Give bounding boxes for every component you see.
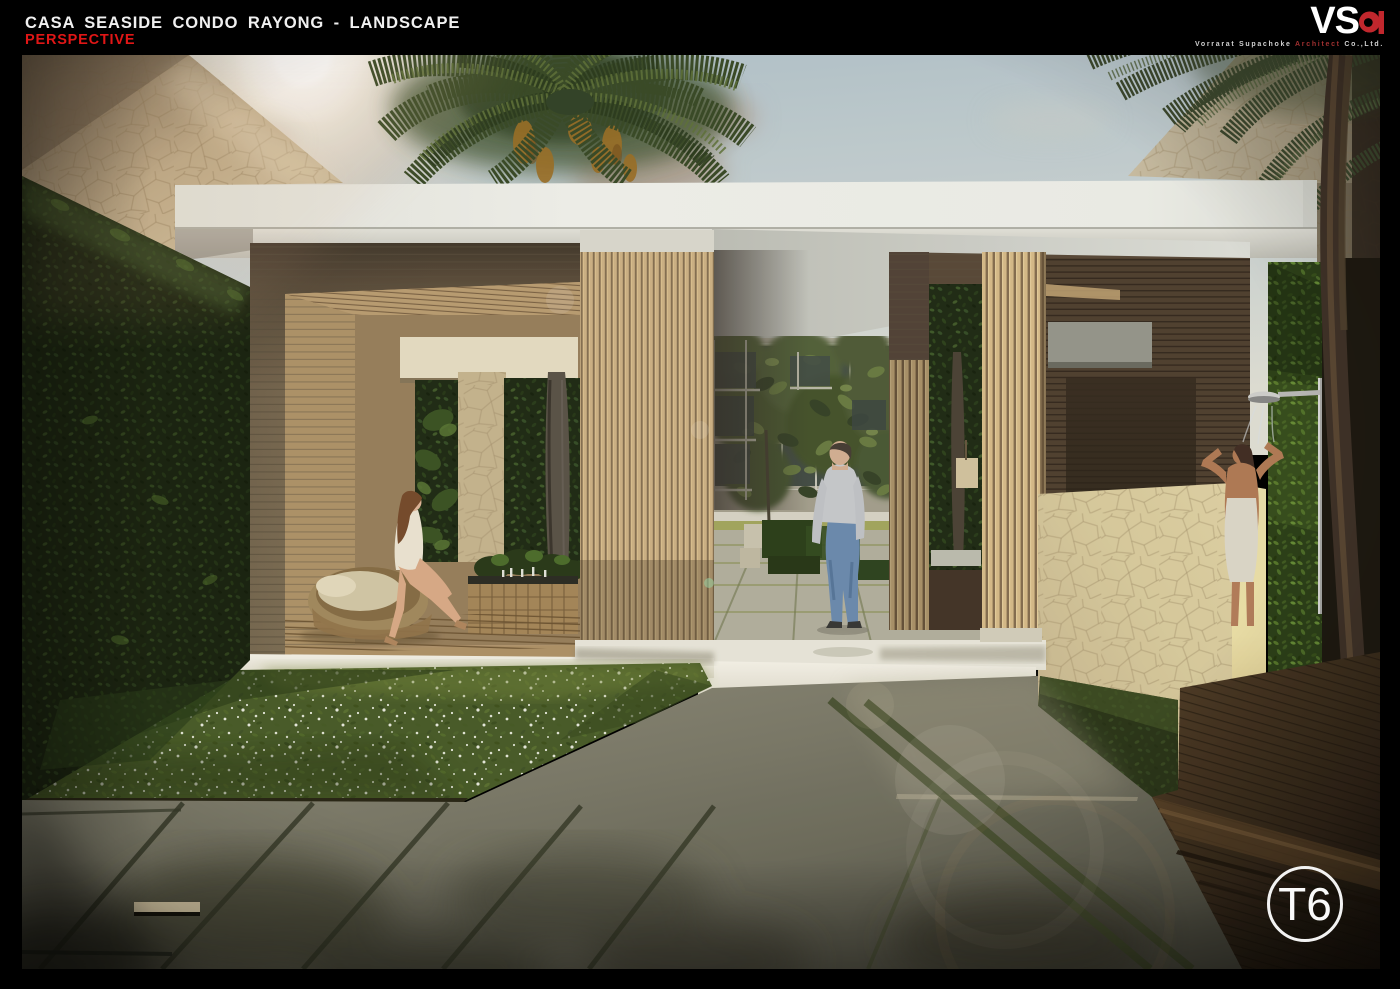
svg-text:T6: T6 xyxy=(1278,878,1332,930)
